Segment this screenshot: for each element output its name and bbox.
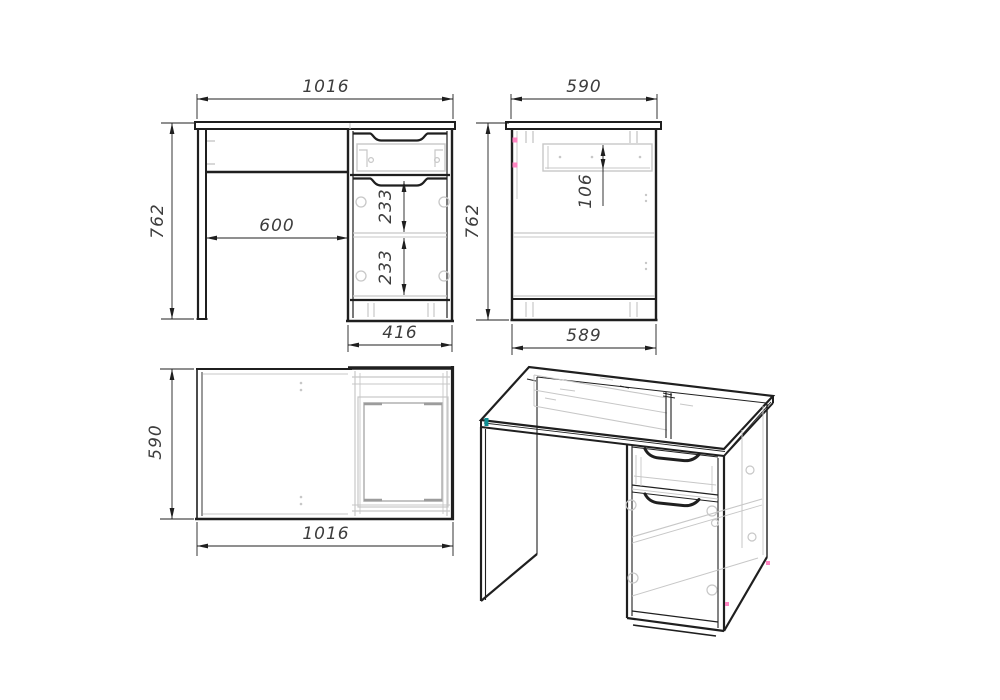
technical-drawing: 1016 762 600 233 233 416 [0,0,1000,700]
cam-marker-teal [485,418,489,426]
side-dim-carcass-depth: 589 [512,324,656,355]
dim-front-overall-height: 762 [148,203,168,238]
side-desktop [506,122,661,129]
front-dim-gap-upper: 233 [376,181,404,232]
cam-marker-pink [766,561,770,565]
dim-side-height: 762 [463,203,483,238]
dim-front-pedestal-width: 416 [382,323,417,343]
dim-front-gap-lower: 233 [376,249,396,284]
front-drawer-handle-cutout [353,134,447,141]
front-dim-overall-height: 762 [148,123,194,319]
drawing-canvas: 1016 762 600 233 233 416 [0,0,1000,700]
front-dim-pedestal-width: 416 [348,323,452,352]
iso-desktop [481,367,773,449]
dim-front-overall-width: 1016 [302,77,349,97]
side-dim-drawer-height: 106 [576,145,603,209]
top-view: 590 1016 [146,366,454,556]
front-desktop [195,122,455,129]
side-view: 590 762 106 589 [463,77,661,355]
front-dim-knee-space: 600 [206,216,348,238]
front-dim-overall-width: 1016 [197,77,453,119]
dim-top-depth: 590 [146,424,166,459]
dim-top-width: 1016 [302,524,349,544]
cam-marker-pink [513,163,518,168]
cam-marker-pink [513,138,518,143]
dim-front-gap-upper: 233 [376,188,396,223]
dim-front-knee-space: 600 [259,216,294,236]
isometric-view [481,367,773,636]
dim-side-top-depth: 590 [566,77,601,97]
side-dim-height: 762 [463,123,509,320]
cam-marker-pink [725,602,729,606]
side-dim-top-depth: 590 [511,77,657,119]
top-dim-width: 1016 [197,522,453,556]
top-drawer-box [358,397,448,507]
front-view: 1016 762 600 233 233 416 [148,77,455,352]
dim-side-carcass-depth: 589 [566,326,601,346]
dim-side-drawer-height: 106 [576,173,596,208]
front-door-handle-cutout [353,179,447,186]
top-dim-depth: 590 [146,369,194,519]
front-dim-gap-lower: 233 [376,238,404,295]
